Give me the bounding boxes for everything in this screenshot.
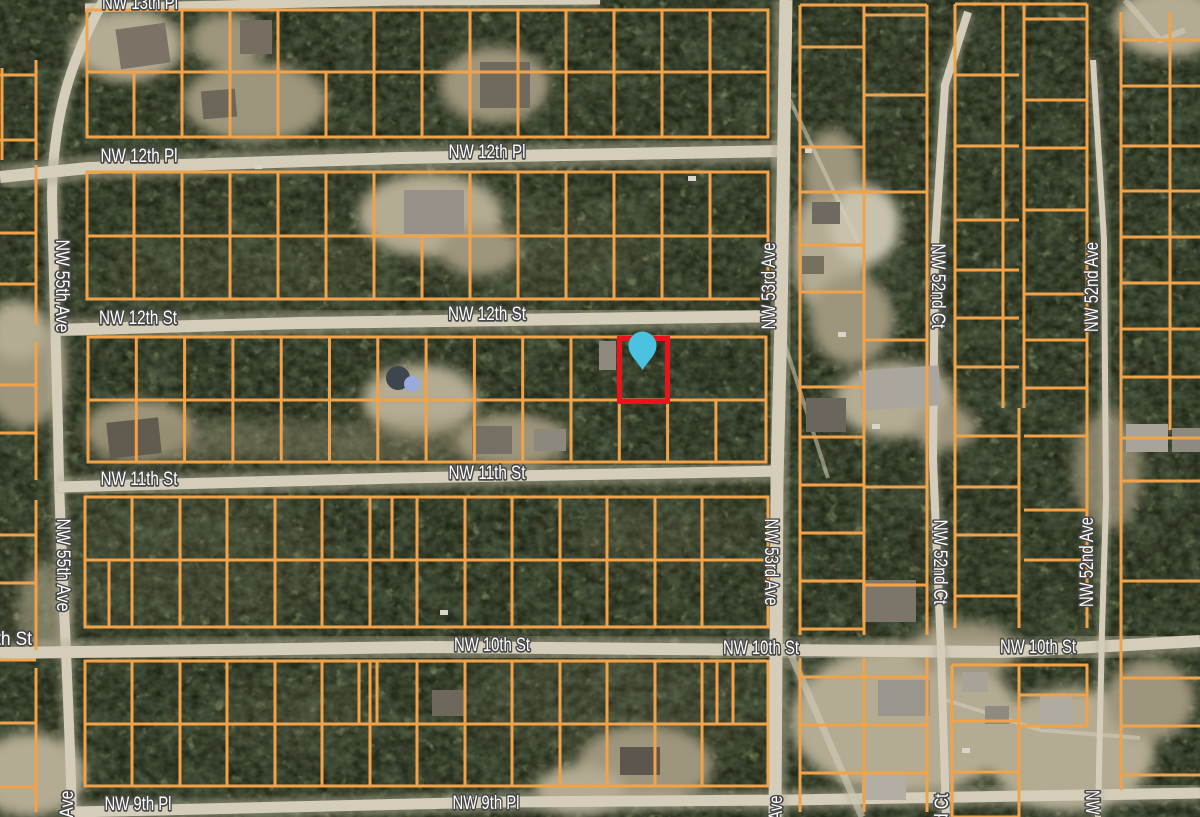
svg-text:NW 9th Pl: NW 9th Pl (453, 793, 520, 814)
svg-text:NW 12th Pl: NW 12th Pl (449, 142, 526, 163)
svg-text:NW 10th St: NW 10th St (723, 638, 800, 659)
svg-text:NW 55th Ave: NW 55th Ave (52, 519, 73, 612)
svg-text:NW 53rd Ave: NW 53rd Ave (760, 519, 781, 606)
svg-text:NW 52nd Ct: NW 52nd Ct (932, 793, 953, 817)
svg-text:NW 55th Ave: NW 55th Ave (57, 791, 78, 817)
svg-text:NW 11th St: NW 11th St (101, 469, 179, 490)
svg-text:NW 9th Pl: NW 9th Pl (105, 794, 172, 815)
svg-text:NW 52nd Ave: NW 52nd Ave (1082, 242, 1103, 332)
svg-text:NW 12th Pl: NW 12th Pl (101, 146, 178, 167)
svg-text:NW 12th St: NW 12th St (448, 304, 527, 325)
svg-text:NW 11th St: NW 11th St (449, 463, 527, 484)
svg-text:NW 55th Ave: NW 55th Ave (51, 240, 72, 333)
svg-text:NW 53rd Ave: NW 53rd Ave (759, 243, 780, 330)
svg-text:th St: th St (0, 629, 33, 650)
svg-text:NW 10th St: NW 10th St (454, 635, 531, 656)
svg-text:NW 13th Pl: NW 13th Pl (102, 0, 178, 14)
svg-text:NW 52nd Ave: NW 52nd Ave (1077, 517, 1098, 607)
svg-text:NW 53rd Ave: NW 53rd Ave (766, 796, 787, 817)
svg-text:NW 52nd Ct: NW 52nd Ct (929, 520, 950, 606)
svg-text:NW 12th St: NW 12th St (99, 308, 178, 329)
svg-text:NW 52nd Ave: NW 52nd Ave (1081, 790, 1102, 817)
svg-text:NW 10th St: NW 10th St (1000, 637, 1077, 658)
svg-text:NW 52nd Ct: NW 52nd Ct (927, 244, 948, 330)
